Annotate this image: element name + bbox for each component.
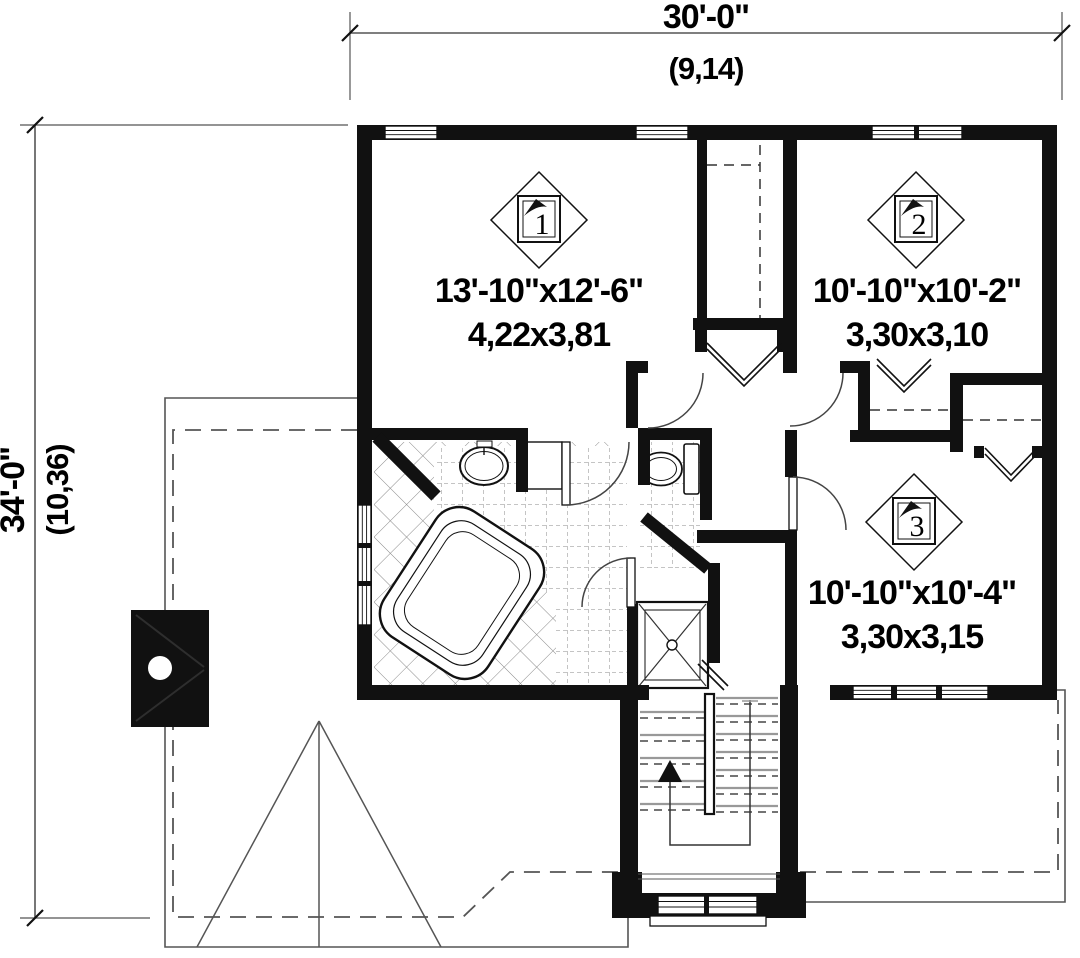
dimension-width-metric: (9,14) bbox=[669, 51, 744, 86]
window-room1-right bbox=[636, 126, 688, 139]
window-room2 bbox=[872, 126, 962, 139]
window-room3-triple bbox=[853, 686, 988, 699]
room-3-size-imperial: 10'-10"x10'-4" bbox=[808, 574, 1016, 612]
window-bay bbox=[650, 896, 766, 926]
room-1-size-metric: 4,22x3,81 bbox=[468, 316, 610, 354]
room-2-size-metric: 3,30x3,10 bbox=[846, 316, 988, 354]
bay-window-sill bbox=[650, 916, 766, 926]
room-1-number: 1 bbox=[535, 208, 550, 241]
floor-plan-page: 1 13'-10"x12'-6" 4,22x3,81 2 10'-10"x10'… bbox=[0, 0, 1080, 953]
room-2-size-imperial: 10'-10"x10'-2" bbox=[813, 272, 1021, 310]
room-3-size-metric: 3,30x3,15 bbox=[841, 618, 983, 656]
shower bbox=[637, 602, 708, 688]
shower-drain bbox=[667, 640, 677, 650]
room3-west-wall bbox=[785, 530, 797, 685]
chimney-flue bbox=[148, 656, 172, 680]
floor-plan-canvas: 1 13'-10"x12'-6" 4,22x3,81 2 10'-10"x10'… bbox=[0, 0, 1080, 953]
bathroom-wall bbox=[372, 428, 522, 440]
room-3-number: 3 bbox=[910, 510, 925, 543]
dimension-depth-imperial: 34'-0" bbox=[0, 447, 32, 533]
faucet-icon bbox=[477, 441, 492, 447]
window-room1-left bbox=[385, 126, 437, 139]
room-2-number: 2 bbox=[912, 208, 927, 241]
dimension-width-imperial: 30'-0" bbox=[663, 0, 749, 36]
dimension-depth-metric: (10,36) bbox=[40, 444, 75, 535]
stair-rail bbox=[705, 694, 714, 814]
closet-top-left-wall bbox=[697, 140, 707, 330]
window-bathroom-left bbox=[358, 505, 371, 625]
chimney bbox=[131, 610, 209, 727]
room-1-size-imperial: 13'-10"x12'-6" bbox=[435, 272, 643, 310]
